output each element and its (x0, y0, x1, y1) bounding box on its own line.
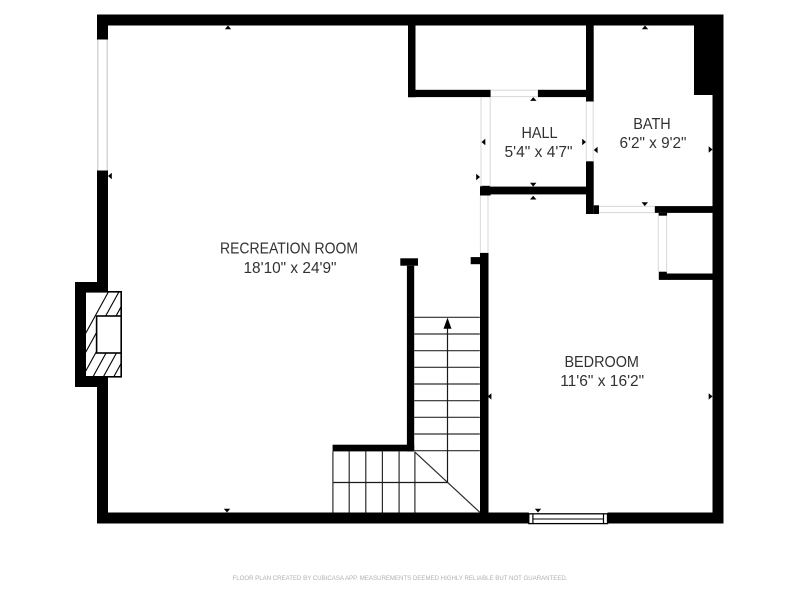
svg-text:5'4" x 4'7": 5'4" x 4'7" (505, 144, 573, 161)
svg-text:18'10" x 24'9": 18'10" x 24'9" (244, 260, 337, 277)
svg-text:FLOOR PLAN CREATED BY CUBICASA: FLOOR PLAN CREATED BY CUBICASA APP. MEAS… (233, 575, 568, 582)
svg-text:BATH: BATH (633, 116, 671, 133)
svg-text:BEDROOM: BEDROOM (564, 354, 639, 371)
svg-text:RECREATION ROOM: RECREATION ROOM (220, 241, 358, 258)
svg-text:6'2" x 9'2": 6'2" x 9'2" (620, 135, 687, 152)
svg-text:HALL: HALL (522, 125, 558, 142)
svg-text:11'6" x 16'2": 11'6" x 16'2" (560, 373, 644, 390)
